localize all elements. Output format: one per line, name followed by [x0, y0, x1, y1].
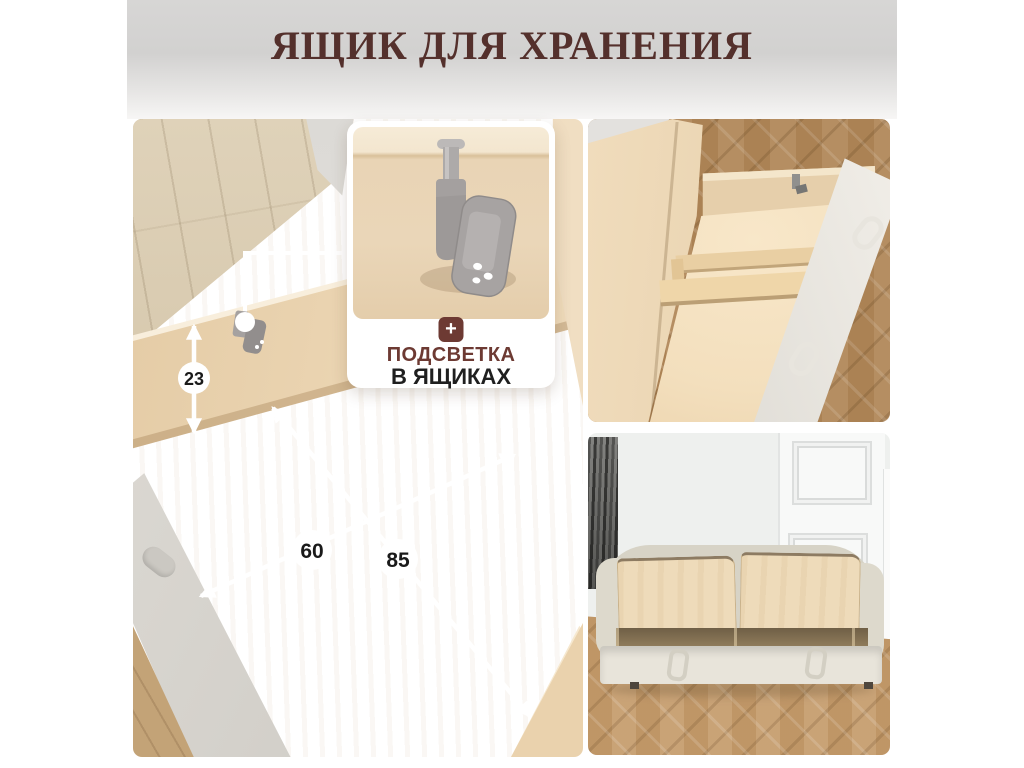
- sofa-base: [600, 646, 882, 684]
- width-value: 60: [300, 540, 323, 563]
- product-infographic: ЯЩИК ДЛЯ ХРАНЕНИЯ: [0, 0, 1024, 768]
- sofa-foot-left: [630, 682, 639, 689]
- callout-subtitle: В ЯЩИКАХ: [347, 364, 555, 390]
- door-panel-upper: [792, 441, 872, 505]
- white-cabinet-edge: [883, 469, 890, 643]
- photo-sofa-open-storage: [588, 433, 890, 755]
- plus-icon: +: [439, 317, 464, 342]
- callout-leader-line: [245, 253, 349, 315]
- lighting-callout-card: + ПОДСВЕТКА В ЯЩИКАХ: [347, 121, 555, 388]
- sensor-marker-dot: [235, 312, 255, 332]
- photo-drawer-on-parquet: [588, 119, 890, 422]
- depth-value: 85: [386, 549, 410, 572]
- width-arrow: [201, 455, 514, 596]
- height-value: 23: [184, 369, 204, 389]
- callout-photo-hinge-light: [353, 127, 549, 319]
- hinge-light-illustration: [353, 127, 549, 319]
- header-band: ЯЩИК ДЛЯ ХРАНЕНИЯ: [127, 0, 897, 119]
- sofa-foot-right: [864, 682, 873, 689]
- page-title: ЯЩИК ДЛЯ ХРАНЕНИЯ: [127, 22, 897, 69]
